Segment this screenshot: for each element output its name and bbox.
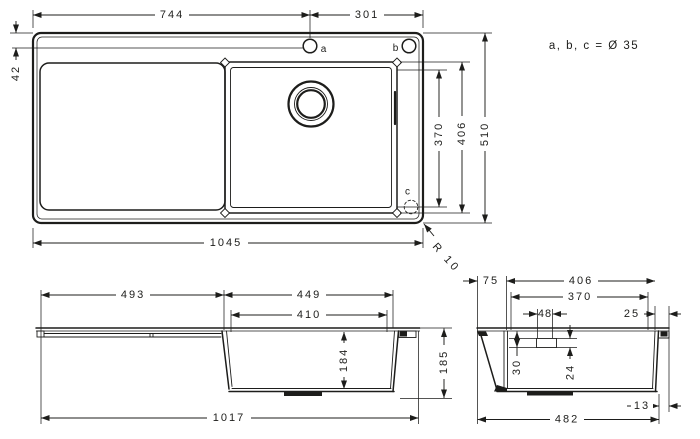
dim-75: 75 [483, 275, 499, 287]
dim-744: 744 [160, 9, 184, 21]
bowl-inner-edge [231, 68, 392, 208]
drainboard-recess [40, 63, 225, 210]
hole-c-label: c [405, 187, 411, 198]
section-drain-box [537, 339, 557, 348]
dim-section-top-widths: 75 406 [463, 275, 655, 287]
dim-13: 13 [627, 400, 681, 412]
dim-24-label: 24 [565, 364, 577, 380]
dim-301: 301 [355, 9, 379, 21]
hole-a-label: a [321, 44, 328, 55]
dim-48-label: 48 [538, 308, 552, 320]
drain-opening [289, 82, 334, 127]
technical-drawing: a b c 744 301 [0, 0, 700, 439]
section-drain-boss [527, 392, 573, 396]
dim-42: 42 [10, 21, 22, 81]
dim-184-label: 184 [338, 348, 350, 372]
dim-184: 184 [338, 332, 350, 389]
dim-185: 185 [438, 329, 450, 399]
bowl-outer-rim [225, 62, 397, 213]
dim-406-section: 406 [569, 275, 593, 287]
section-view: 75 406 370 48 25 [463, 275, 681, 426]
holes-diameter-note: a, b, c = Ø 35 [549, 40, 639, 52]
section-left-wall [480, 332, 497, 390]
corner-radius-callout: R 10 [422, 222, 463, 275]
dim-370-section: 370 [511, 291, 648, 303]
corner-radius-label: R 10 [430, 241, 463, 275]
dim-482: 482 [478, 414, 660, 426]
dim-side-lengths: 493 449 [41, 289, 393, 301]
dim-1017-label: 1017 [213, 412, 245, 424]
dim-410-label: 410 [297, 309, 321, 321]
section-right-wall [656, 331, 659, 392]
dim-13-label: 13 [634, 400, 650, 412]
dim-1045-label: 1045 [210, 237, 242, 249]
dim-449: 449 [297, 289, 321, 301]
dim-185-label: 185 [438, 350, 450, 374]
dim-510: 510 [479, 122, 491, 146]
dim-410: 410 [231, 309, 387, 321]
dim-493: 493 [121, 289, 145, 301]
dim-25-label: 25 [624, 308, 640, 320]
dim-30-label: 30 [511, 359, 523, 375]
dim-top-depths: 370 406 510 [433, 33, 491, 223]
sink-technical-drawing-page: a b c 744 301 [0, 0, 700, 439]
dim-42-label: 42 [10, 65, 22, 81]
tap-hole-b [402, 39, 416, 53]
side-bowl-profile [222, 331, 399, 396]
hole-b-label: b [393, 43, 400, 54]
dim-482-label: 482 [555, 414, 579, 426]
dim-1045: 1045 [33, 237, 423, 249]
side-left-edge [37, 331, 44, 337]
dim-24: 24 [565, 325, 577, 383]
dim-25: 25 [621, 308, 681, 320]
tap-hole-a [303, 39, 317, 53]
side-view-extension-lines [41, 290, 452, 424]
dim-48: 48 [523, 308, 567, 320]
dim-370-top: 370 [433, 122, 445, 146]
dim-406-top: 406 [456, 121, 468, 145]
top-view: a b c 744 301 [10, 9, 639, 275]
side-view: 493 449 410 184 185 1017 [36, 289, 452, 424]
dim-370-section-label: 370 [568, 291, 592, 303]
dim-top-widths: 744 301 [33, 9, 423, 21]
side-drain-boss [284, 392, 322, 397]
dim-1017: 1017 [41, 412, 419, 424]
